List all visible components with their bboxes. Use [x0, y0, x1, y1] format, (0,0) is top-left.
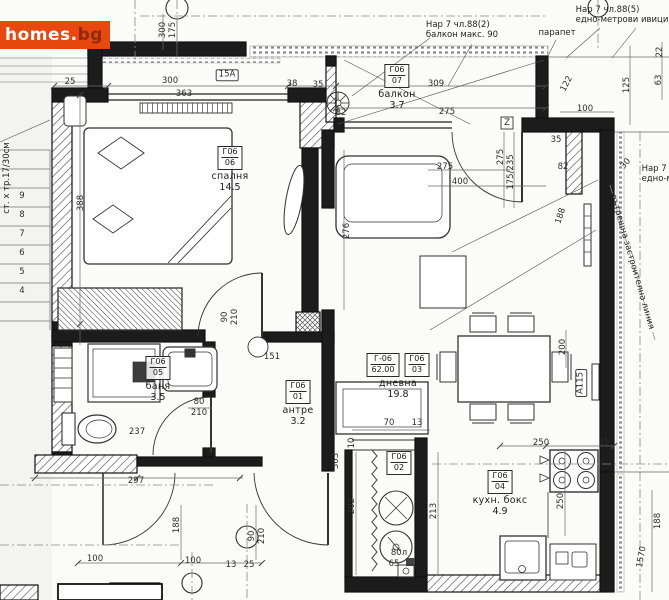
- lamp: [248, 337, 268, 357]
- floorplan-page: 30036315А3835253092758230017512210012563…: [0, 0, 669, 600]
- dining-radiator: [592, 364, 599, 400]
- wardrobe: [58, 288, 182, 330]
- toilet-tank: [62, 413, 75, 445]
- floor-plan-drawing: [0, 0, 669, 600]
- dining-table: [458, 336, 550, 402]
- drain: [133, 362, 155, 382]
- logo-text-main: homes.: [5, 25, 78, 45]
- tap: [185, 349, 195, 357]
- homes-bg-logo: homes.bg: [0, 21, 110, 49]
- towel-radiator: [54, 348, 72, 402]
- logo-text-suffix: bg: [78, 25, 103, 45]
- coffee-table: [420, 256, 466, 308]
- nightstand: [64, 96, 86, 126]
- radiator: [140, 103, 232, 113]
